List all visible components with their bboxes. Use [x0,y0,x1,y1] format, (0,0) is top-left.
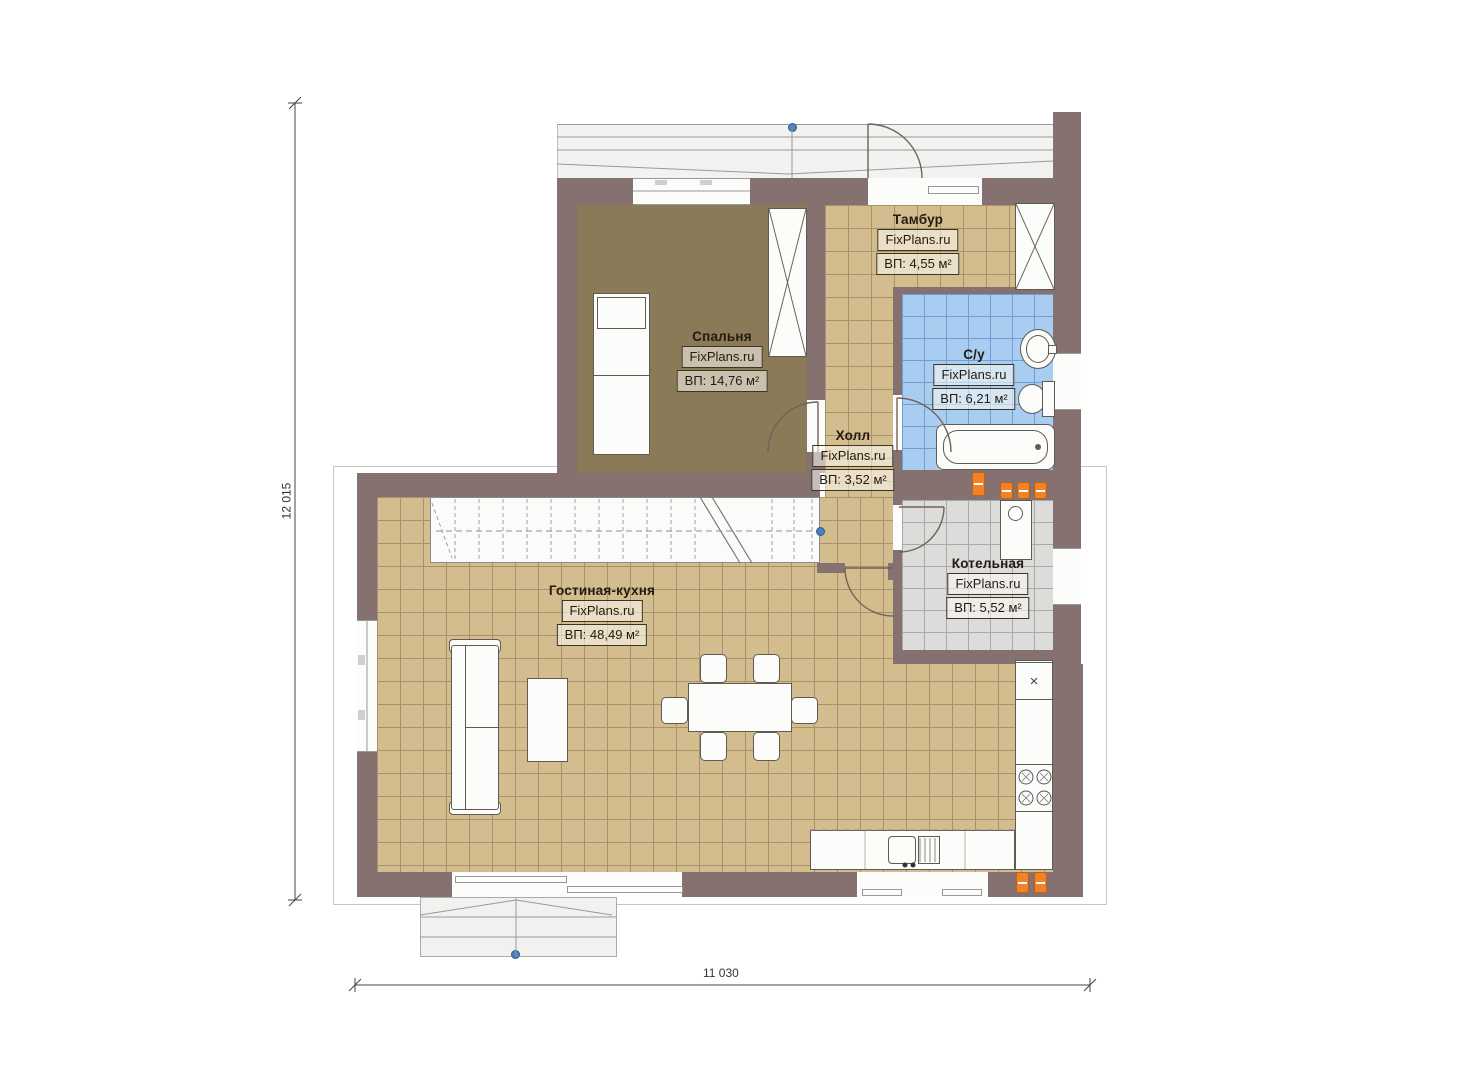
window-living-bottom-frame-a [862,889,902,896]
dining-chair [661,697,688,724]
wall-right-upper [1053,112,1081,353]
area-box: ВП: 6,21 м² [932,388,1015,410]
room-label-vestibule: Тамбур FixPlans.ru ВП: 4,55 м² [876,212,959,275]
area-box: ВП: 5,52 м² [946,597,1029,619]
coffee-table [527,678,568,762]
sliding-door-panel-b [567,886,683,893]
radiator [1034,482,1047,499]
window-bathroom-right [1053,353,1081,410]
wardrobe [768,208,807,357]
brand-box: FixPlans.ru [877,229,958,251]
dimension-height-label: 12 015 [279,483,293,520]
entrance-porch [420,897,617,957]
stove [1015,764,1053,812]
terrace-deck [557,124,1056,181]
radiator [1017,482,1030,499]
radiator [972,472,985,496]
room-name: Спальня [692,329,752,344]
dining-table [688,683,792,732]
dining-chair [753,732,780,761]
sliding-door-panel-a [455,876,567,883]
bathtub-inner [943,430,1048,464]
room-label-boiler: Котельная FixPlans.ru ВП: 5,52 м² [946,556,1029,619]
marker-dot [816,527,825,536]
dining-chair [753,654,780,683]
brand-box: FixPlans.ru [933,364,1014,386]
sink-tap [1048,345,1057,354]
bathtub-drain [1035,444,1041,450]
boiler-dial [1008,506,1023,521]
area-box: ВП: 48,49 м² [557,624,648,646]
dining-chair [791,697,818,724]
room-label-living-kitchen: Гостиная-кухня FixPlans.ru ВП: 48,49 м² [549,583,655,646]
wall-right-boiler [1053,605,1081,664]
window-vestibule-frame [928,186,979,194]
wall-bedroom-hall [807,203,825,400]
entrance-door-opening [868,178,925,205]
room-name: С/у [963,347,985,362]
wall-hall-stub-right [888,563,897,580]
room-name: Гостиная-кухня [549,583,655,598]
bed-pillow [597,297,646,329]
window-boiler-right [1053,548,1081,605]
brand-box: FixPlans.ru [561,600,642,622]
sofa-cushion-line [466,727,498,728]
wall-right-lower [1053,664,1083,897]
dining-chair [700,654,727,683]
room-name: Холл [836,428,871,443]
dining-chair [700,732,727,761]
wall-bottom-b [682,872,857,897]
boiler-door-opening [893,505,902,550]
bathroom-sink-bowl [1026,335,1050,363]
dimension-width-label: 11 030 [703,966,739,980]
staircase [430,497,820,563]
room-name: Тамбур [893,212,943,227]
wall-left-upper [557,178,577,473]
room-label-hall: Холл FixPlans.ru ВП: 3,52 м² [811,428,894,491]
wall-living-top [357,473,820,497]
wall-right-mid [1053,410,1081,548]
window-bedroom-top [633,178,750,205]
floor-plan: × [0,0,1474,1080]
radiator [1000,482,1013,499]
fridge-symbol: × [1015,662,1053,700]
brand-box: FixPlans.ru [947,573,1028,595]
window-living-left [357,620,377,752]
window-living-bottom-frame-b [942,889,982,896]
wall-bathroom-left-a [893,294,902,395]
room-label-bathroom: С/у FixPlans.ru ВП: 6,21 м² [932,347,1015,410]
bed-blanket-line [594,375,649,376]
kitchen-sink [888,836,916,864]
area-box: ВП: 14,76 м² [677,370,768,392]
radiator [1016,872,1029,893]
marker-dot [788,123,797,132]
vestibule-closet [1015,203,1055,290]
room-name: Котельная [952,556,1024,571]
radiator [1034,872,1047,893]
toilet-tank [1042,381,1055,417]
wall-top-b [750,178,868,205]
brand-box: FixPlans.ru [681,346,762,368]
area-box: ВП: 3,52 м² [811,469,894,491]
brand-box: FixPlans.ru [812,445,893,467]
sink-drainer [918,836,940,864]
room-label-bedroom: Спальня FixPlans.ru ВП: 14,76 м² [677,329,768,392]
wall-hall-stub-left [817,563,845,573]
marker-dot [511,950,520,959]
area-box: ВП: 4,55 м² [876,253,959,275]
wall-top-c [982,178,1055,205]
wall-bottom-a [357,872,452,897]
